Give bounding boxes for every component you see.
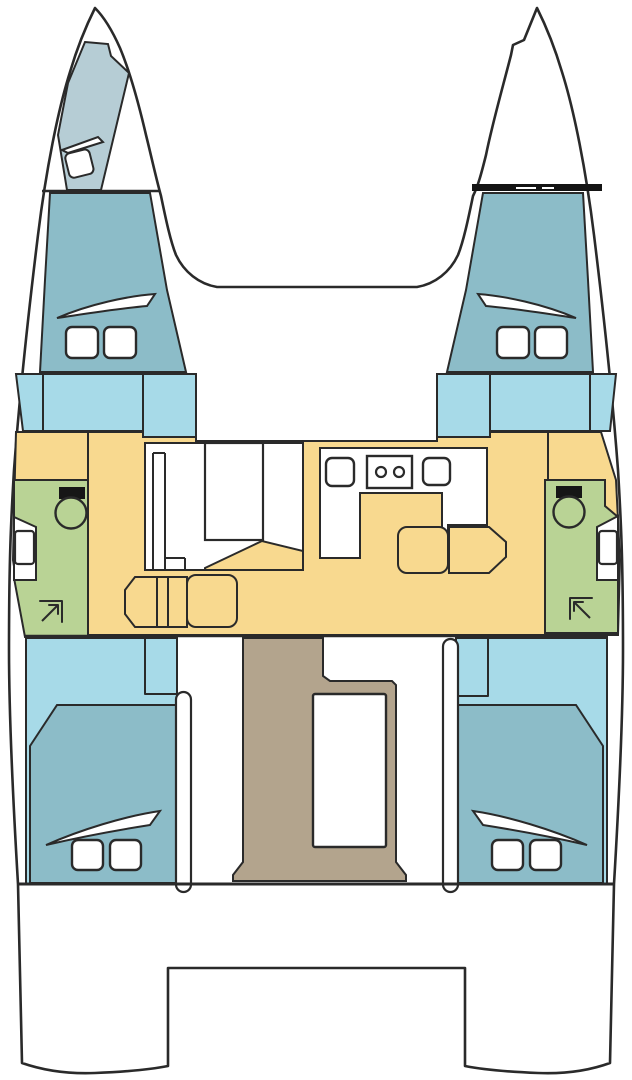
catamaran-deck-plan (0, 0, 632, 1080)
cockpit-table (313, 694, 386, 847)
starboard-side-deck-inner (437, 374, 490, 437)
port-sliding-door (176, 692, 191, 892)
starboard-head-sink (599, 531, 617, 564)
saloon-aft-seat (187, 575, 237, 627)
galley-seat (398, 527, 448, 573)
port-side-deck (43, 374, 143, 431)
saloon-aft-seat-hex (125, 577, 157, 627)
forepeak-hatch (64, 148, 94, 178)
starboard-forward-hatch (497, 327, 529, 358)
starboard-toilet-bowl (554, 497, 585, 528)
galley-end-seat (449, 527, 506, 573)
port-head-sink (15, 531, 34, 564)
crossbar-highlight (542, 187, 554, 189)
starboard-aft-hatch (492, 840, 523, 870)
stove-burner (394, 467, 404, 477)
port-forward-hatch (66, 327, 98, 358)
saloon-sole (13, 432, 620, 635)
port-side-deck-inner (143, 374, 196, 437)
port-aft-hatch (72, 840, 103, 870)
saloon-aft-seat-slot (168, 577, 187, 627)
starboard-bow-crossbar (472, 184, 602, 191)
galley-module (423, 458, 450, 485)
port-aft-hatch (110, 840, 141, 870)
saloon-aft-seat-slot (157, 577, 168, 627)
saloon-table (205, 443, 263, 540)
galley-sink (326, 458, 354, 486)
stove-burner (376, 467, 386, 477)
stove (367, 456, 412, 488)
starboard-side-deck (490, 374, 590, 431)
starboard-aft-hatch (530, 840, 561, 870)
deck-plan-svg (0, 0, 632, 1080)
port-forward-hatch (104, 327, 136, 358)
port-toilet-bowl (56, 498, 87, 529)
crossbar-highlight (516, 187, 536, 189)
starboard-sliding-door (443, 639, 458, 892)
starboard-forward-hatch (535, 327, 567, 358)
